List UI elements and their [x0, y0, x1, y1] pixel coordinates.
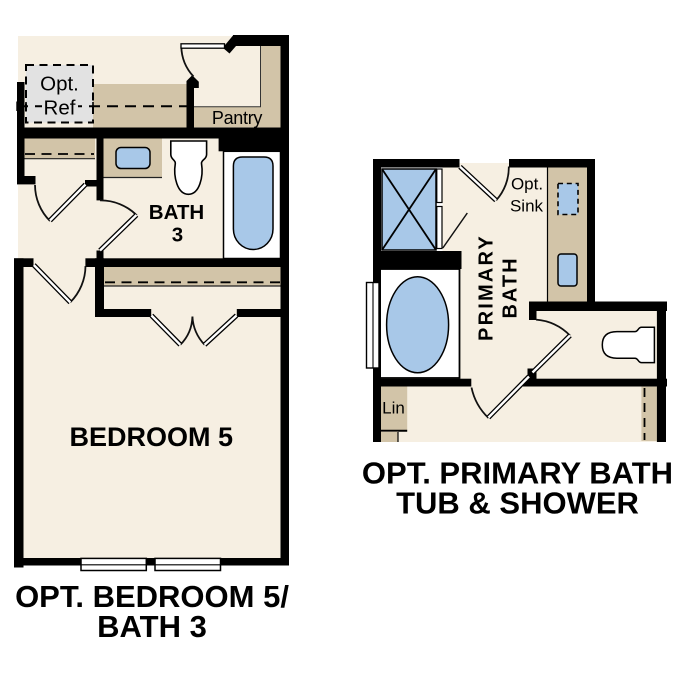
svg-text:Pantry: Pantry [212, 108, 263, 128]
svg-text:Ref: Ref [44, 97, 76, 120]
svg-text:PRIMARY: PRIMARY [476, 234, 498, 341]
svg-text:TUB & SHOWER: TUB & SHOWER [396, 486, 639, 521]
svg-text:Sink: Sink [510, 197, 544, 216]
svg-text:Opt.: Opt. [511, 175, 543, 194]
svg-text:3: 3 [172, 224, 183, 247]
svg-text:BATH 3: BATH 3 [97, 609, 207, 644]
svg-text:BEDROOM 5: BEDROOM 5 [70, 422, 234, 452]
svg-text:BATH: BATH [500, 256, 522, 318]
svg-text:BATH: BATH [149, 201, 204, 224]
svg-text:Opt.: Opt. [40, 73, 79, 96]
svg-text:Lin: Lin [382, 399, 405, 418]
